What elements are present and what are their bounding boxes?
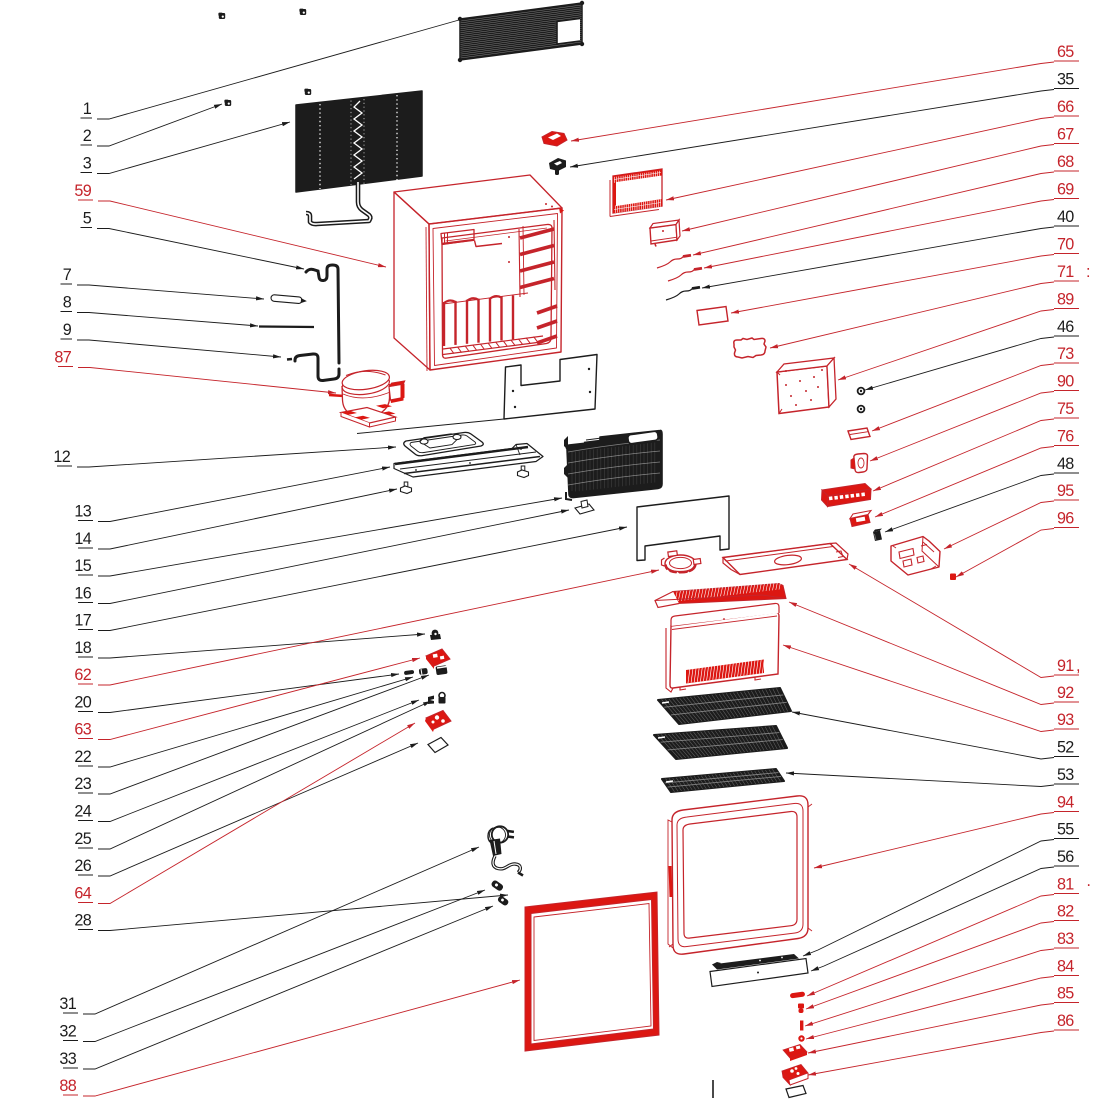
svg-text:83: 83: [1057, 930, 1074, 948]
svg-text:·: ·: [1086, 875, 1091, 893]
svg-text:86: 86: [1057, 1012, 1074, 1030]
svg-text:5: 5: [83, 209, 92, 227]
svg-text:53: 53: [1057, 766, 1074, 784]
svg-text:14: 14: [74, 530, 91, 548]
svg-text:40: 40: [1057, 208, 1074, 226]
svg-text:94: 94: [1057, 793, 1074, 811]
svg-text:7: 7: [63, 266, 72, 284]
svg-text:88: 88: [59, 1077, 76, 1095]
svg-text:64: 64: [74, 884, 91, 902]
svg-text:63: 63: [74, 720, 91, 738]
svg-text:,: ,: [1076, 657, 1080, 675]
svg-text:46: 46: [1057, 318, 1074, 336]
svg-text:9: 9: [63, 321, 72, 339]
svg-text:16: 16: [74, 584, 91, 602]
svg-text:68: 68: [1057, 153, 1074, 171]
svg-text:28: 28: [74, 911, 91, 929]
svg-text:33: 33: [59, 1050, 76, 1068]
svg-text:8: 8: [63, 293, 72, 311]
svg-text:2: 2: [83, 127, 92, 145]
svg-text:90: 90: [1057, 372, 1074, 390]
svg-text:66: 66: [1057, 98, 1074, 116]
svg-text:91: 91: [1057, 657, 1074, 675]
svg-text:52: 52: [1057, 738, 1074, 756]
svg-text:59: 59: [74, 182, 91, 200]
svg-text:95: 95: [1057, 482, 1074, 500]
svg-text:48: 48: [1057, 455, 1074, 473]
svg-text:32: 32: [59, 1022, 76, 1040]
svg-text:62: 62: [74, 666, 91, 684]
svg-text:1: 1: [83, 100, 92, 118]
svg-text:56: 56: [1057, 848, 1074, 866]
svg-text:93: 93: [1057, 711, 1074, 729]
svg-text:20: 20: [74, 693, 91, 711]
svg-text:18: 18: [74, 639, 91, 657]
svg-text:26: 26: [74, 857, 91, 875]
svg-text:75: 75: [1057, 400, 1074, 418]
svg-text:82: 82: [1057, 902, 1074, 920]
svg-text:25: 25: [74, 830, 91, 848]
svg-text::: :: [1086, 263, 1090, 281]
svg-text:55: 55: [1057, 820, 1074, 838]
svg-text:24: 24: [74, 802, 91, 820]
svg-text:96: 96: [1057, 509, 1074, 527]
svg-text:15: 15: [74, 557, 91, 575]
svg-text:76: 76: [1057, 427, 1074, 445]
svg-text:92: 92: [1057, 684, 1074, 702]
svg-text:31: 31: [59, 995, 76, 1013]
svg-text:81: 81: [1057, 875, 1074, 893]
svg-text:12: 12: [53, 448, 70, 466]
svg-text:65: 65: [1057, 43, 1074, 61]
svg-text:73: 73: [1057, 345, 1074, 363]
svg-text:67: 67: [1057, 125, 1074, 143]
svg-text:70: 70: [1057, 235, 1074, 253]
svg-text:22: 22: [74, 748, 91, 766]
svg-text:35: 35: [1057, 70, 1074, 88]
svg-text:85: 85: [1057, 984, 1074, 1002]
svg-text:87: 87: [54, 348, 71, 366]
svg-text:69: 69: [1057, 180, 1074, 198]
svg-text:89: 89: [1057, 290, 1074, 308]
svg-text:13: 13: [74, 502, 91, 520]
svg-text:17: 17: [74, 611, 91, 629]
svg-text:23: 23: [74, 775, 91, 793]
svg-text:3: 3: [83, 154, 92, 172]
svg-text:84: 84: [1057, 957, 1074, 975]
svg-text:71: 71: [1057, 263, 1074, 281]
